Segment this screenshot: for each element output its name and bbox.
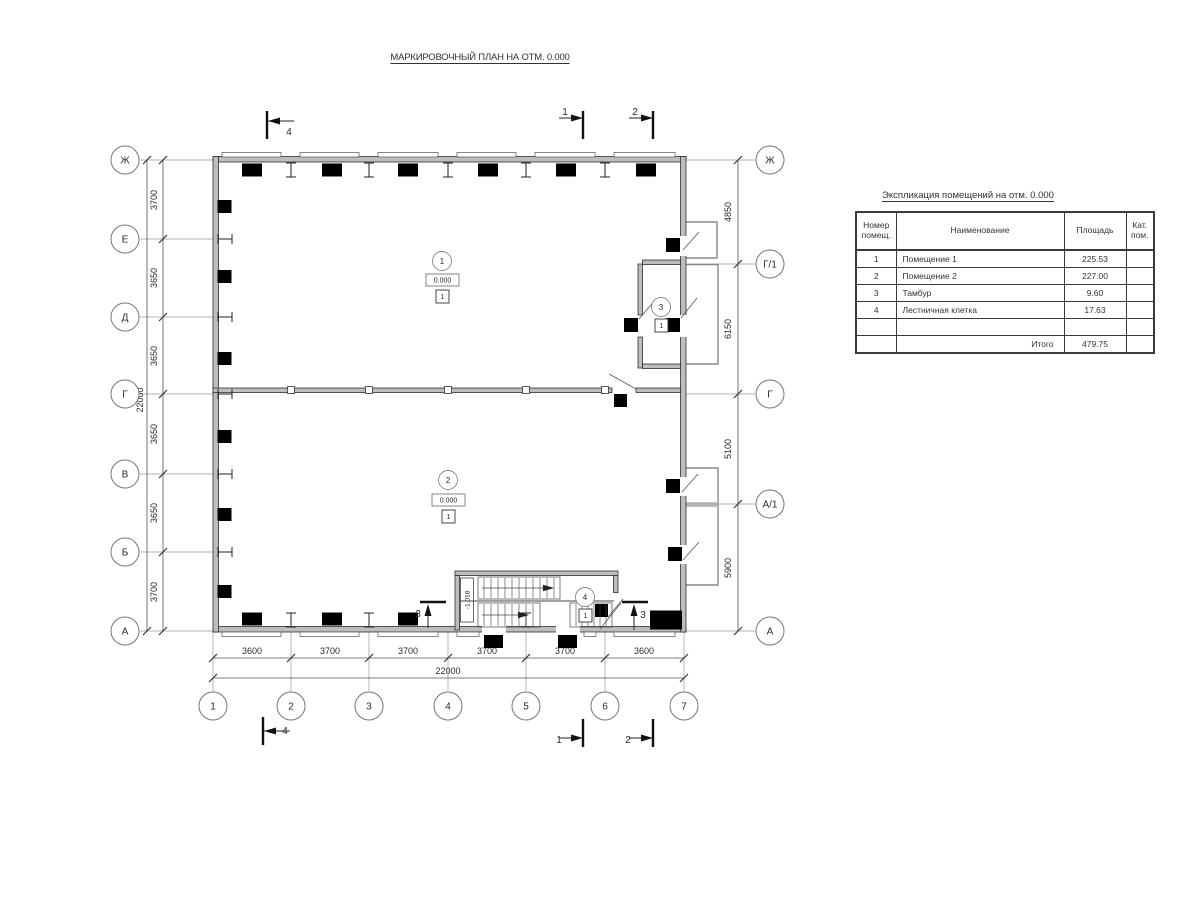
spec-total-label: Итого <box>896 336 1064 354</box>
dim-label: 5900 <box>723 558 733 578</box>
spec-total-row: Итого 479.75 <box>856 336 1154 354</box>
drawing-sheet: МАРКИРОВОЧНЫЙ ПЛАН НА ОТМ. 0.000 3700 36… <box>0 0 1200 900</box>
column-symbols <box>218 163 610 627</box>
axis-label: 1 <box>210 702 216 713</box>
spec-cell-cat <box>1126 319 1154 336</box>
spec-row: 1 Помещение 1 225.53 <box>856 250 1154 268</box>
axis-label: Д <box>122 313 129 324</box>
axis-label: А <box>767 627 774 638</box>
windows <box>222 153 675 637</box>
spec-row <box>856 319 1154 336</box>
dim-label: 3600 <box>634 646 654 656</box>
room-labels: 1 0.000 1 2 0.000 1 3 1 4 1 <box>426 252 671 623</box>
room-number: 2 <box>446 476 451 485</box>
spec-cell-num: 3 <box>856 285 896 302</box>
spec-cell-area: 9.60 <box>1064 285 1126 302</box>
spec-cell-num <box>856 336 896 354</box>
section-label: 4 <box>282 726 288 737</box>
section-label: 2 <box>625 735 631 746</box>
axis-label: Г/1 <box>763 260 777 271</box>
room-elevation: 0.000 <box>434 278 452 285</box>
spec-cell-name: Помещение 1 <box>896 250 1064 268</box>
axis-label: Г <box>767 390 773 401</box>
spec-col-area: Площадь <box>1064 212 1126 250</box>
axis-label: 3 <box>366 702 372 713</box>
spec-cell-num: 4 <box>856 302 896 319</box>
spec-col-cat: Кат. пом. <box>1126 212 1154 250</box>
drawing-title: МАРКИРОВОЧНЫЙ ПЛАН НА ОТМ. 0.000 <box>330 52 630 63</box>
dim-label: 3650 <box>149 268 159 288</box>
axis-label: Ж <box>765 156 775 167</box>
section-label: 1 <box>556 735 562 746</box>
spec-cell-area: 225.53 <box>1064 250 1126 268</box>
spec-cell-cat <box>1126 336 1154 354</box>
spec-cell-name: Тамбур <box>896 285 1064 302</box>
dim-label: 3700 <box>320 646 340 656</box>
axis-label: Ж <box>120 156 130 167</box>
spec-table-block: Экспликация помещений на отм. 0.000 Номе… <box>848 190 1154 354</box>
room-floor-mark: 1 <box>584 613 588 620</box>
room-number: 1 <box>440 257 445 266</box>
spec-cell-area: 17.63 <box>1064 302 1126 319</box>
spec-cell-name: Помещение 2 <box>896 268 1064 285</box>
room-floor-mark: 1 <box>441 294 445 301</box>
dim-label: 6150 <box>723 319 733 339</box>
axis-label: 4 <box>445 702 451 713</box>
axis-label: 7 <box>681 702 687 713</box>
spec-cell-num: 2 <box>856 268 896 285</box>
dim-label: 4850 <box>723 202 733 222</box>
axis-label: Б <box>122 548 129 559</box>
floor-plan-drawing: 3700 3650 3650 3650 3650 3700 22000 3600… <box>0 0 1200 900</box>
exterior-stoops <box>686 222 718 585</box>
spec-row: 3 Тамбур 9.60 <box>856 285 1154 302</box>
spec-table-title: Экспликация помещений на отм. 0.000 <box>848 190 1088 201</box>
room-number: 3 <box>659 303 664 312</box>
dim-label-total: 22000 <box>435 666 460 676</box>
spec-cell-num <box>856 319 896 336</box>
axis-label: 6 <box>602 702 608 713</box>
dim-label: 3700 <box>398 646 418 656</box>
spec-cell-area <box>1064 319 1126 336</box>
section-label: 3 <box>640 610 646 621</box>
spec-cell-cat <box>1126 268 1154 285</box>
spec-row: 2 Помещение 2 227.00 <box>856 268 1154 285</box>
axis-label: 2 <box>288 702 294 713</box>
dim-label: 3700 <box>149 582 159 602</box>
spec-row: 4 Лестничная клетка 17.63 <box>856 302 1154 319</box>
section-label: 2 <box>632 107 638 118</box>
spec-cell-name: Лестничная клетка <box>896 302 1064 319</box>
axis-label: А <box>122 627 129 638</box>
dim-label: 3700 <box>149 190 159 210</box>
spec-header-row: Номер помещ. Наименование Площадь Кат. п… <box>856 212 1154 250</box>
spec-table-title-text: Экспликация помещений на отм. 0.000 <box>882 190 1054 201</box>
spec-cell-num: 1 <box>856 250 896 268</box>
section-label: 1 <box>562 107 568 118</box>
dimension-lines <box>147 160 738 678</box>
dim-label: 5100 <box>723 439 733 459</box>
room-floor-mark: 1 <box>447 514 451 521</box>
dim-label: 3650 <box>149 424 159 444</box>
spec-table: Номер помещ. Наименование Площадь Кат. п… <box>855 211 1155 354</box>
axis-label: Г <box>122 390 128 401</box>
dim-label: 3650 <box>149 346 159 366</box>
spec-cell-area: 227.00 <box>1064 268 1126 285</box>
section-label: 4 <box>286 127 292 138</box>
spec-cell-name <box>896 319 1064 336</box>
room-elevation: 0.000 <box>440 498 458 505</box>
axis-label: А/1 <box>762 500 777 511</box>
room-number: 4 <box>583 593 588 602</box>
axis-label: Е <box>122 235 129 246</box>
dim-label: 3600 <box>242 646 262 656</box>
room-floor-mark: 1 <box>660 323 664 330</box>
spec-col-name: Наименование <box>896 212 1064 250</box>
drawing-title-text: МАРКИРОВОЧНЫЙ ПЛАН НА ОТМ. 0.000 <box>390 52 569 63</box>
spec-total-area: 479.75 <box>1064 336 1126 354</box>
axis-label: 5 <box>523 702 529 713</box>
spec-col-num: Номер помещ. <box>856 212 896 250</box>
spec-cell-cat <box>1126 285 1154 302</box>
stair-elevation-label: -1.018 <box>465 590 472 609</box>
section-label: 3 <box>415 609 421 620</box>
spec-cell-cat <box>1126 250 1154 268</box>
spec-cell-cat <box>1126 302 1154 319</box>
dim-label: 3650 <box>149 503 159 523</box>
axis-label: В <box>122 470 129 481</box>
